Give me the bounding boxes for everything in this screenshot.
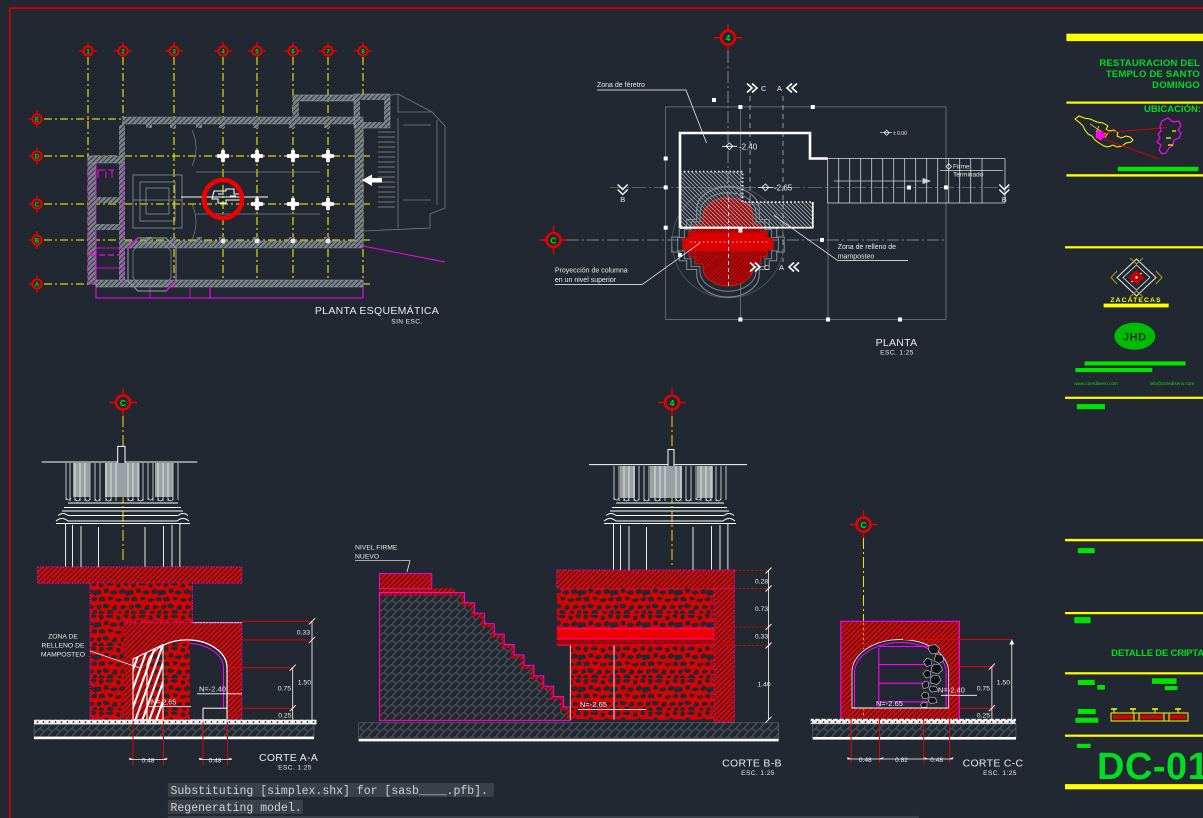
svg-text:ZACATECAS: ZACATECAS [1110,297,1161,304]
svg-text:NIVEL FIRME: NIVEL FIRME [355,545,398,552]
svg-text:4: 4 [670,398,675,408]
svg-text:PLANTA: PLANTA [876,337,918,349]
svg-text:C: C [550,236,556,246]
svg-text:UBICACIÓN:: UBICACIÓN: [1144,103,1201,115]
svg-text:1.40: 1.40 [757,682,770,689]
svg-text:NUEVO: NUEVO [355,554,379,561]
svg-text:N=-2.65: N=-2.65 [151,700,176,707]
svg-text:0.25: 0.25 [278,713,291,720]
svg-text:0.48: 0.48 [930,757,943,764]
svg-text:ZONA DE: ZONA DE [48,634,78,641]
svg-text:1: 1 [86,49,90,56]
svg-text:1.50: 1.50 [997,680,1010,687]
svg-text:6: 6 [291,49,295,56]
svg-text:C: C [764,263,770,272]
svg-text:ESC. 1:25: ESC. 1:25 [278,765,312,772]
svg-text:0.48: 0.48 [859,757,872,764]
svg-text:Regenerating model.: Regenerating model. [171,802,302,815]
svg-text:DOMINGO: DOMINGO [1152,80,1200,91]
svg-text:N=-2.40: N=-2.40 [938,686,965,695]
svg-text:0.33: 0.33 [297,630,310,637]
svg-text:8: 8 [361,49,365,56]
svg-text:0.82: 0.82 [895,757,908,764]
svg-text:www.corediseno.com: www.corediseno.com [1074,381,1118,386]
svg-text:Zona de relleno de: Zona de relleno de [838,244,896,251]
svg-text:Firme: Firme [953,164,970,171]
svg-text:7: 7 [326,49,330,56]
svg-text:± 0.00: ± 0.00 [893,131,907,137]
svg-text:ESC. 1:25: ESC. 1:25 [880,350,914,357]
svg-text:2: 2 [121,49,125,56]
svg-text:mamposteo: mamposteo [838,254,875,261]
svg-text:N=-2.65: N=-2.65 [876,699,903,708]
svg-text:C: C [35,202,40,209]
svg-text:B: B [620,195,625,204]
svg-text:E: E [35,117,40,124]
svg-text:0.33: 0.33 [755,634,768,641]
svg-text:4: 4 [726,33,731,43]
svg-text:RELLENO DE: RELLENO DE [41,643,85,650]
svg-text:B: B [35,238,40,245]
svg-text:0.25: 0.25 [977,713,990,720]
svg-text:SIN ESC.: SIN ESC. [391,319,422,326]
svg-text:-2.40: -2.40 [739,143,758,152]
svg-text:ESC. 1:25: ESC. 1:25 [983,770,1017,777]
svg-text:-2.65: -2.65 [774,184,793,193]
svg-text:Proyección de columna: Proyección de columna [555,268,628,275]
svg-text:JHD: JHD [1123,332,1147,344]
svg-text:DC-01: DC-01 [1097,746,1203,788]
svg-text:info@corediseno.com: info@corediseno.com [1150,381,1195,386]
svg-text:0.75: 0.75 [278,686,291,693]
svg-text:5: 5 [255,49,259,56]
svg-text:0.28: 0.28 [755,579,768,586]
svg-text:N=-2.40: N=-2.40 [199,685,226,694]
svg-text:0.48: 0.48 [142,758,155,765]
svg-text:A: A [35,282,40,289]
svg-text:C: C [120,398,126,408]
svg-text:TEMPLO DE SANTO: TEMPLO DE SANTO [1106,69,1200,80]
svg-text:Substituting [simplex.shx] for: Substituting [simplex.shx] for [sasb____… [171,785,488,798]
svg-text:3: 3 [172,49,176,56]
svg-text:MAMPOSTEO: MAMPOSTEO [41,652,85,659]
svg-text:A: A [777,84,782,93]
svg-text:4: 4 [221,49,225,56]
svg-text:D: D [35,154,40,161]
svg-text:0.48: 0.48 [209,758,222,765]
svg-text:CORTE A-A: CORTE A-A [259,752,318,764]
svg-text:N=-2.65: N=-2.65 [580,700,607,709]
svg-text:PLANTA ESQUEMÁTICA: PLANTA ESQUEMÁTICA [315,304,439,317]
svg-text:B: B [1002,195,1007,204]
svg-text:0.75: 0.75 [977,686,990,693]
svg-text:C: C [860,520,866,530]
svg-text:ESC. 1:25: ESC. 1:25 [741,770,775,777]
svg-text:CORTE C-C: CORTE C-C [963,758,1024,770]
svg-text:C: C [761,84,767,93]
svg-text:en un nivel superior: en un nivel superior [555,277,617,284]
svg-text:Zona de féretro: Zona de féretro [597,82,645,89]
svg-text:DETALLE DE CRIPTA: DETALLE DE CRIPTA [1111,648,1203,659]
svg-text:1.50: 1.50 [298,680,311,687]
svg-text:A: A [779,263,784,272]
svg-text:CORTE B-B: CORTE B-B [722,758,782,770]
svg-text:0.73: 0.73 [755,606,768,613]
svg-text:Terminado: Terminado [953,172,984,179]
svg-text:RESTAURACION DEL: RESTAURACION DEL [1099,58,1200,69]
